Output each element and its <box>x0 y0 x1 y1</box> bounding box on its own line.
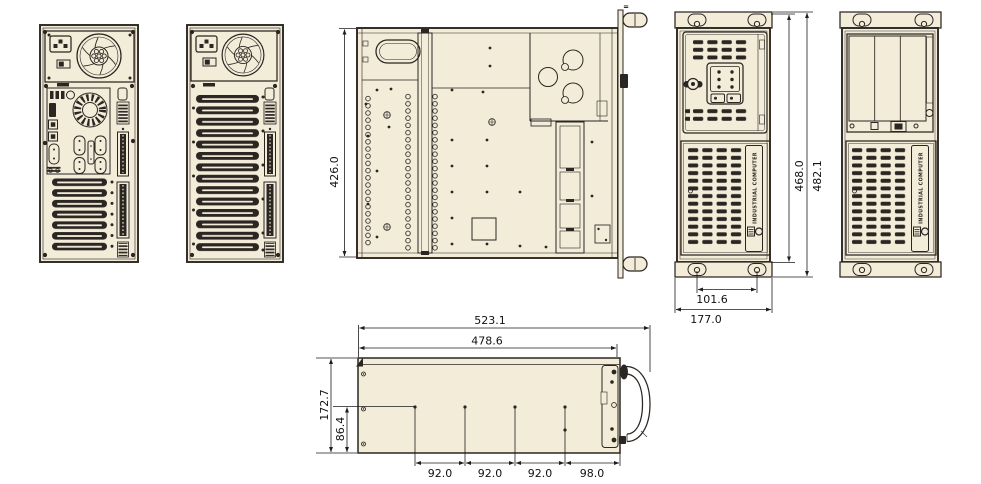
dim-label-523: 523.1 <box>474 314 506 327</box>
dim-front-inner-height: 468.0 <box>771 14 806 263</box>
dim-label-98: 98.0 <box>580 467 605 480</box>
dim-label-468: 468.0 <box>793 160 806 192</box>
front-grille <box>851 147 908 247</box>
top-view: = <box>328 3 647 278</box>
dim-top-view-depth: 426.0 <box>328 29 356 258</box>
dim-side-inner-length: 478.6 <box>360 335 618 358</box>
front-view-door: INDUSTRIAL COMPUTER 468.0 482.1 <box>675 12 824 326</box>
dim-label-478: 478.6 <box>471 335 503 348</box>
handle-bottom <box>623 257 647 271</box>
front-view-open: INDUSTRIAL COMPUTER <box>840 12 941 277</box>
dim-label-177: 177.0 <box>690 313 722 326</box>
technical-drawing: = <box>0 0 981 484</box>
drawing-page: = <box>0 0 981 484</box>
dim-label-482: 482.1 <box>811 160 824 192</box>
dim-label-426: 426.0 <box>328 156 341 188</box>
side-handle <box>601 365 650 448</box>
dim-label-101: 101.6 <box>696 293 728 306</box>
dim-label-92-2: 92.0 <box>478 467 503 480</box>
card-clips-right <box>431 93 439 251</box>
dim-front-outer-height: 482.1 <box>773 12 824 277</box>
thumbscrew <box>620 74 628 88</box>
door-vents-bottom <box>692 108 749 124</box>
front-grille <box>687 147 744 247</box>
side-view: 523.1 478.6 172.7 86.4 92.0 92.0 <box>316 314 650 480</box>
brand-strip-label: INDUSTRIAL COMPUTER <box>753 152 759 224</box>
rear-view-14-slot <box>187 25 283 262</box>
dim-label-92-3: 92.0 <box>528 467 553 480</box>
rack-flange <box>618 10 623 278</box>
handle-top <box>623 13 647 27</box>
top-mark: = <box>623 3 629 11</box>
expansion-slots-14 <box>196 94 260 254</box>
dim-mount-spacings: 92.0 92.0 92.0 98.0 <box>416 463 619 480</box>
dim-label-86: 86.4 <box>334 417 347 442</box>
brand-strip-label: INDUSTRIAL COMPUTER <box>919 152 925 224</box>
rear-view-7-slot <box>40 25 138 262</box>
dim-label-172: 172.7 <box>318 389 331 421</box>
card-clips-mid <box>404 93 412 251</box>
expansion-slots-7 <box>52 178 108 253</box>
door-vents-top <box>692 39 749 62</box>
dim-label-92-1: 92.0 <box>428 467 453 480</box>
card-clips-left <box>364 95 372 247</box>
